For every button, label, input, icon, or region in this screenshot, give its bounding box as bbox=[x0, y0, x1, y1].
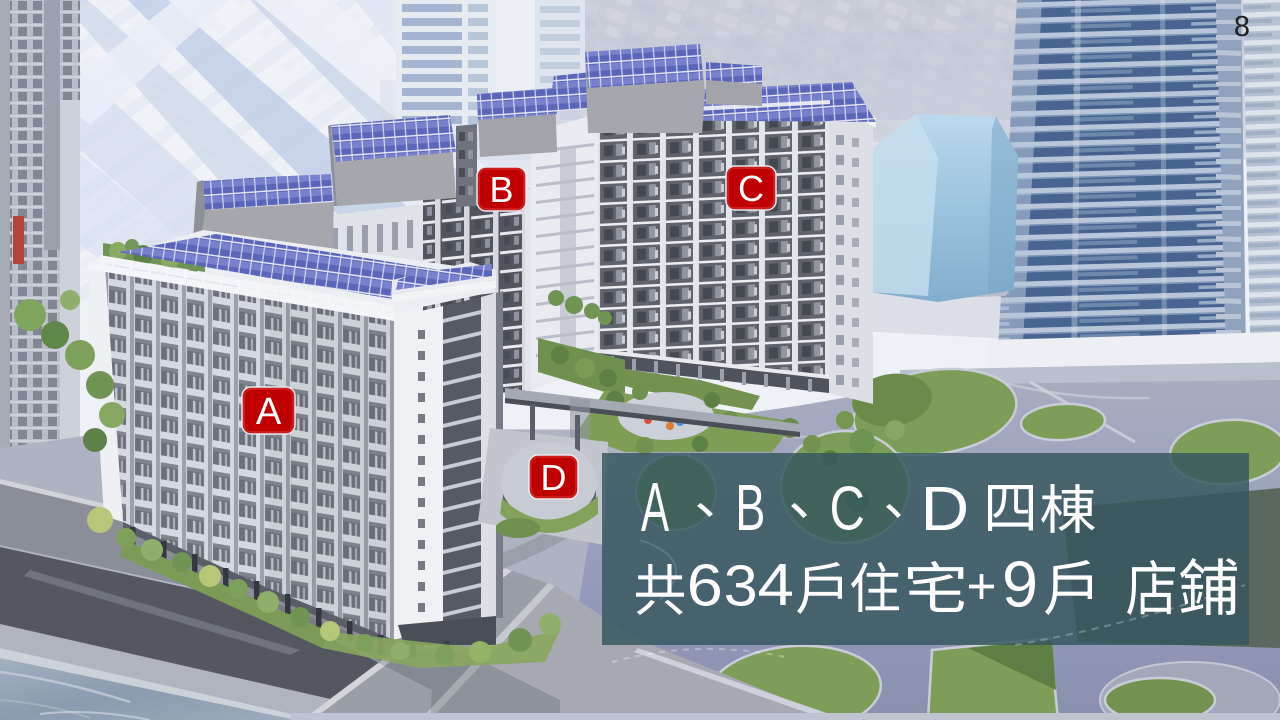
svg-text:B: B bbox=[489, 169, 513, 210]
svg-text:8: 8 bbox=[1234, 11, 1250, 43]
svg-text:A: A bbox=[256, 391, 282, 433]
svg-text:C: C bbox=[738, 168, 764, 209]
svg-text:D: D bbox=[541, 457, 567, 498]
